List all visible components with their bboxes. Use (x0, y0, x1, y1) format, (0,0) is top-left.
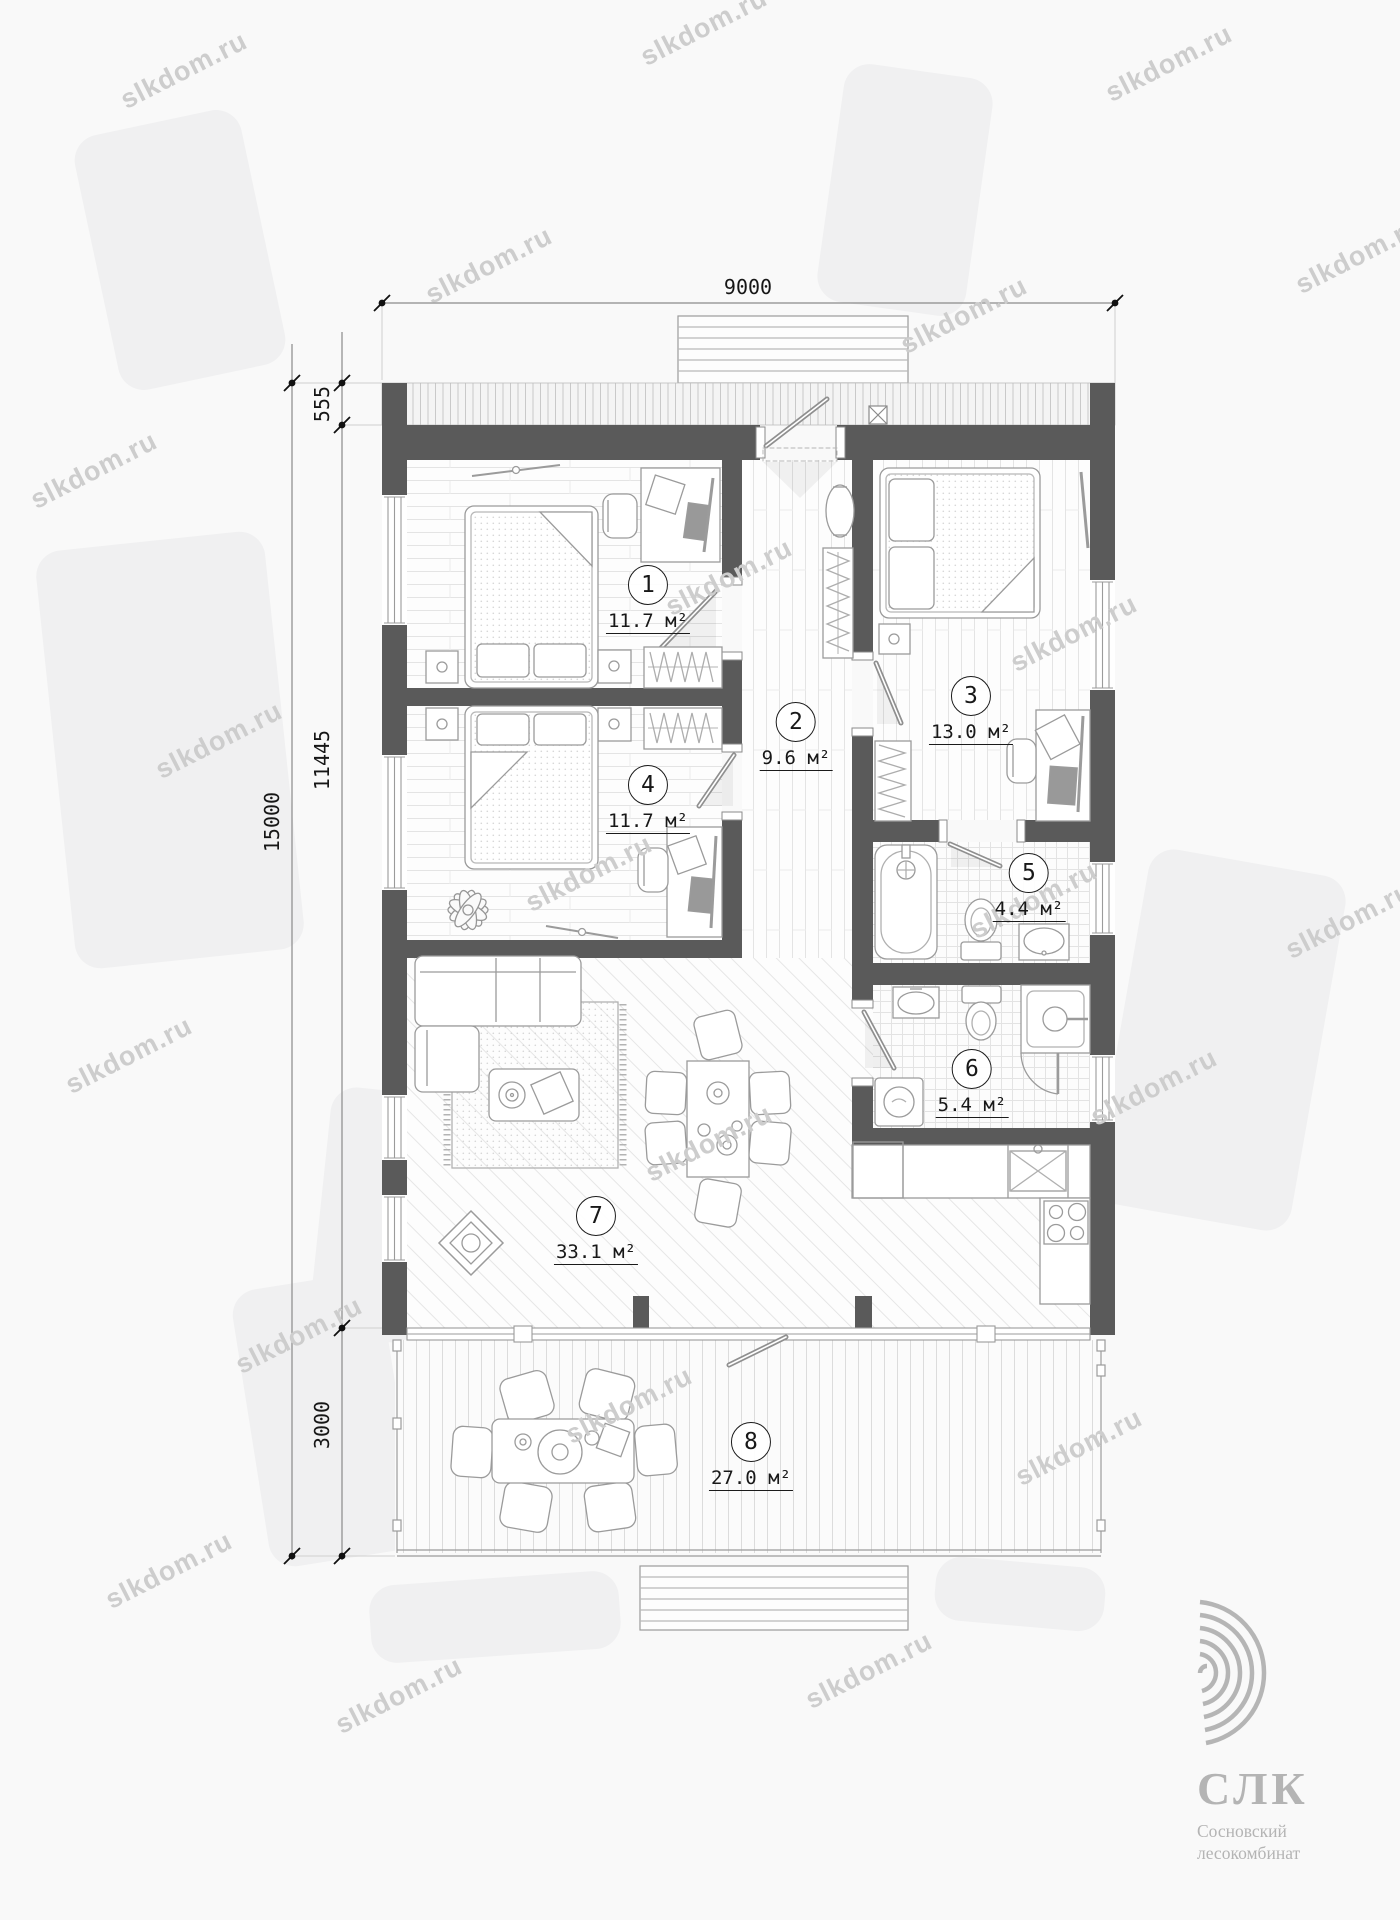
dining-chair (645, 1121, 688, 1166)
dining-table (687, 1061, 749, 1177)
room-area: 33.1 м² (554, 1241, 638, 1265)
nightstand (598, 650, 631, 683)
room-number: 2 (789, 709, 803, 735)
room-number: 5 (1022, 860, 1036, 886)
room-number-circle: 4 (628, 765, 668, 805)
room-area: 4.4 м² (993, 898, 1066, 922)
double-bed (465, 706, 598, 869)
room-label-6: 6 5.4 м² (936, 1049, 1009, 1118)
logo-abbr: СЛК (1197, 1762, 1400, 1815)
room-number-circle: 1 (628, 565, 668, 605)
terrace-chair (450, 1426, 493, 1479)
company-logo: СЛК Сосновский лесокомбинат (1197, 1598, 1400, 1865)
kitchen-sink (1010, 1145, 1066, 1191)
glazed-wall-south (407, 1326, 1090, 1342)
wall-top-right (837, 425, 1115, 460)
room-area: 13.0 м² (929, 721, 1013, 745)
dimension-width: 9000 (724, 275, 772, 299)
room-number-circle: 8 (731, 1422, 771, 1462)
terrace-chair (498, 1480, 553, 1534)
wall-bedroom4-living (407, 940, 742, 958)
room-area: 9.6 м² (760, 747, 833, 771)
wall-bedroom3-bath5 (852, 820, 947, 842)
room-number-circle: 5 (1009, 853, 1049, 893)
window (382, 1195, 407, 1262)
desk (1035, 710, 1090, 821)
room-number: 3 (964, 683, 978, 709)
terrace-chair (634, 1423, 678, 1476)
wall-bath6-kitchen (852, 1128, 1115, 1146)
wardrobe (644, 647, 722, 688)
washing-machine (875, 1078, 923, 1126)
room-number: 4 (641, 772, 655, 798)
room-label-8: 8 27.0 м² (709, 1422, 793, 1491)
room-number-circle: 7 (576, 1196, 616, 1236)
room-label-2: 2 9.6 м² (760, 702, 833, 771)
room-label-5: 5 4.4 м² (993, 853, 1066, 922)
wall-bedroom1-bedroom4 (407, 688, 742, 706)
wall-bath5-bath6 (852, 963, 1090, 985)
wardrobe (644, 708, 722, 749)
dimension-main: 11445 (310, 730, 334, 790)
desk-chair (603, 494, 637, 538)
room-area: 27.0 м² (709, 1467, 793, 1491)
room-number: 6 (965, 1056, 979, 1082)
window (382, 755, 407, 890)
standing-mirror (826, 485, 854, 537)
floor-plan-drawing (0, 0, 1400, 1920)
wall-bedrooms-hallway (722, 460, 742, 585)
nightstand (879, 624, 910, 654)
vent-shaft-icon (869, 406, 887, 424)
dining-chair (645, 1071, 687, 1115)
roof-overhang-band (382, 383, 1115, 425)
dimension-overhang: 555 (310, 386, 334, 422)
room-number-circle: 3 (951, 676, 991, 716)
entrance-threshold (763, 448, 837, 461)
nightstand (426, 708, 458, 740)
dimension-total: 15000 (260, 792, 284, 852)
room-label-7: 7 33.1 м² (554, 1196, 638, 1265)
washbasin (1019, 924, 1069, 960)
room-area: 11.7 м² (606, 610, 690, 634)
window (1090, 1055, 1115, 1122)
window (382, 1095, 407, 1160)
terrace-chair (583, 1481, 637, 1533)
floor-plan-page: 1 11.7 м² 2 9.6 м² 3 13.0 м² 4 11.7 м² 5… (0, 0, 1400, 1920)
stove (1044, 1201, 1088, 1244)
desk-chair (1007, 739, 1036, 783)
nightstand (426, 651, 458, 683)
wall-hallway-bedroom3 (852, 460, 873, 660)
desk (641, 468, 720, 562)
room-number: 1 (641, 572, 655, 598)
terrace-steps (640, 1566, 908, 1630)
double-bed (465, 506, 598, 688)
double-bed (880, 468, 1040, 618)
dining-chair (749, 1071, 791, 1115)
hall-wardrobe (823, 548, 853, 658)
washbasin (893, 987, 939, 1018)
entrance-steps (678, 316, 908, 383)
room-area: 5.4 м² (936, 1094, 1009, 1118)
window (1090, 580, 1115, 690)
dimension-terrace: 3000 (310, 1401, 334, 1449)
wardrobe (875, 741, 911, 821)
coffee-table (489, 1069, 579, 1121)
room-number: 7 (589, 1203, 603, 1229)
window (382, 495, 407, 625)
nightstand (598, 708, 631, 741)
bathtub (875, 845, 937, 959)
room-number: 8 (744, 1429, 758, 1455)
room-label-3: 3 13.0 м² (929, 676, 1013, 745)
room-area: 11.7 м² (606, 810, 690, 834)
hallway-furniture (823, 485, 854, 658)
dining-chair (748, 1120, 792, 1165)
room-label-4: 4 11.7 м² (606, 765, 690, 834)
desk (667, 827, 722, 937)
tree-rings-icon (1197, 1598, 1281, 1748)
window (1090, 862, 1115, 935)
room-number-circle: 6 (952, 1049, 992, 1089)
room-label-1: 1 11.7 м² (606, 565, 690, 634)
logo-line1: Сосновский (1197, 1821, 1400, 1843)
room-number-circle: 2 (776, 702, 816, 742)
dining-chair (693, 1178, 742, 1229)
wall-top-left (382, 425, 760, 460)
logo-line2: лесокомбинат (1197, 1843, 1400, 1865)
terrace-table (492, 1419, 634, 1483)
desk-chair (638, 848, 668, 892)
